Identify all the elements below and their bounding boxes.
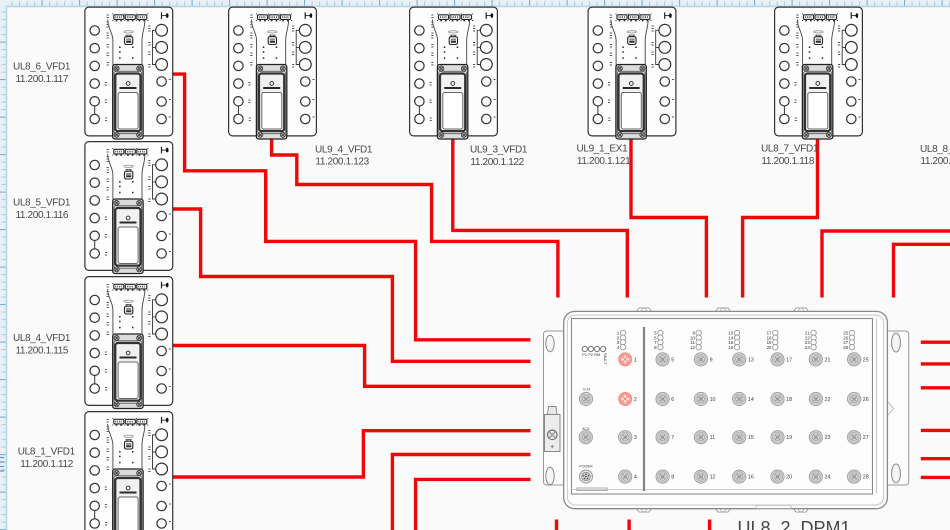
svg-text:28: 28: [843, 345, 848, 350]
svg-text:4: 4: [634, 475, 637, 481]
svg-text:UL8_8_VFD1: UL8_8_VFD1: [920, 144, 950, 155]
svg-text:24: 24: [825, 475, 831, 481]
svg-text:20: 20: [767, 345, 772, 350]
svg-text:16: 16: [748, 475, 754, 481]
svg-text:UL8_5_VFD1: UL8_5_VFD1: [13, 198, 71, 209]
svg-text:28: 28: [863, 475, 869, 481]
svg-text:RM: RM: [594, 353, 600, 357]
svg-text:14: 14: [748, 397, 754, 403]
svg-text:6: 6: [671, 397, 674, 403]
svg-text:UL8_2_DPM1: UL8_2_DPM1: [738, 518, 851, 530]
svg-text:24: 24: [805, 345, 810, 350]
svg-text:UL8_1_VFD1: UL8_1_VFD1: [18, 447, 76, 458]
svg-text:11.200.1.121: 11.200.1.121: [577, 156, 631, 167]
svg-text:UL8_7_VFD1: UL8_7_VFD1: [761, 144, 819, 155]
svg-text:17: 17: [786, 357, 792, 363]
svg-text:11.200.1.119: 11.200.1.119: [920, 156, 950, 167]
svg-text:27: 27: [863, 435, 869, 441]
svg-text:UL9_4_VFD1: UL9_4_VFD1: [315, 144, 373, 155]
svg-text:11.200.1.115: 11.200.1.115: [15, 345, 68, 356]
svg-text:11.200.1.123: 11.200.1.123: [315, 157, 369, 168]
svg-text:18: 18: [786, 397, 792, 403]
svg-text:15: 15: [748, 435, 754, 441]
svg-text:V-24: V-24: [583, 388, 590, 392]
svg-text:1: 1: [634, 357, 637, 363]
svg-text:FAULT: FAULT: [603, 353, 607, 365]
svg-text:11.200.1.118: 11.200.1.118: [761, 156, 814, 167]
svg-text:P2: P2: [588, 353, 593, 357]
svg-text:11.200.1.116: 11.200.1.116: [15, 210, 68, 221]
svg-text:11.200.1.112: 11.200.1.112: [20, 459, 73, 470]
svg-text:25: 25: [863, 357, 869, 363]
svg-text:UL9_3_VFD1: UL9_3_VFD1: [470, 144, 528, 155]
svg-text:16: 16: [728, 345, 733, 350]
svg-text:19: 19: [786, 435, 792, 441]
svg-text:22: 22: [825, 397, 831, 403]
svg-text:11.200.1.117: 11.200.1.117: [15, 74, 68, 85]
svg-text:11.200.1.122: 11.200.1.122: [470, 157, 524, 168]
svg-text:ACA: ACA: [582, 427, 590, 431]
svg-text:2: 2: [634, 397, 637, 403]
svg-text:20: 20: [786, 475, 792, 481]
svg-text:8: 8: [671, 475, 674, 481]
svg-text:9: 9: [710, 357, 713, 363]
svg-text:10: 10: [710, 397, 716, 403]
svg-text:P1: P1: [582, 353, 587, 357]
svg-text:26: 26: [863, 397, 869, 403]
svg-text:12: 12: [690, 345, 695, 350]
svg-text:12: 12: [710, 475, 716, 481]
svg-text:UL9_1_EX1: UL9_1_EX1: [577, 144, 629, 155]
svg-text:11: 11: [710, 435, 716, 441]
svg-text:5: 5: [671, 357, 674, 363]
svg-text:POWER: POWER: [579, 464, 593, 468]
svg-text:13: 13: [748, 357, 754, 363]
svg-text:7: 7: [671, 435, 674, 441]
svg-text:3: 3: [634, 435, 637, 441]
svg-text:21: 21: [825, 357, 831, 363]
svg-text:UL8_4_VFD1: UL8_4_VFD1: [13, 333, 71, 344]
svg-text:23: 23: [825, 435, 831, 441]
svg-text:UL8_6_VFD1: UL8_6_VFD1: [13, 62, 71, 73]
